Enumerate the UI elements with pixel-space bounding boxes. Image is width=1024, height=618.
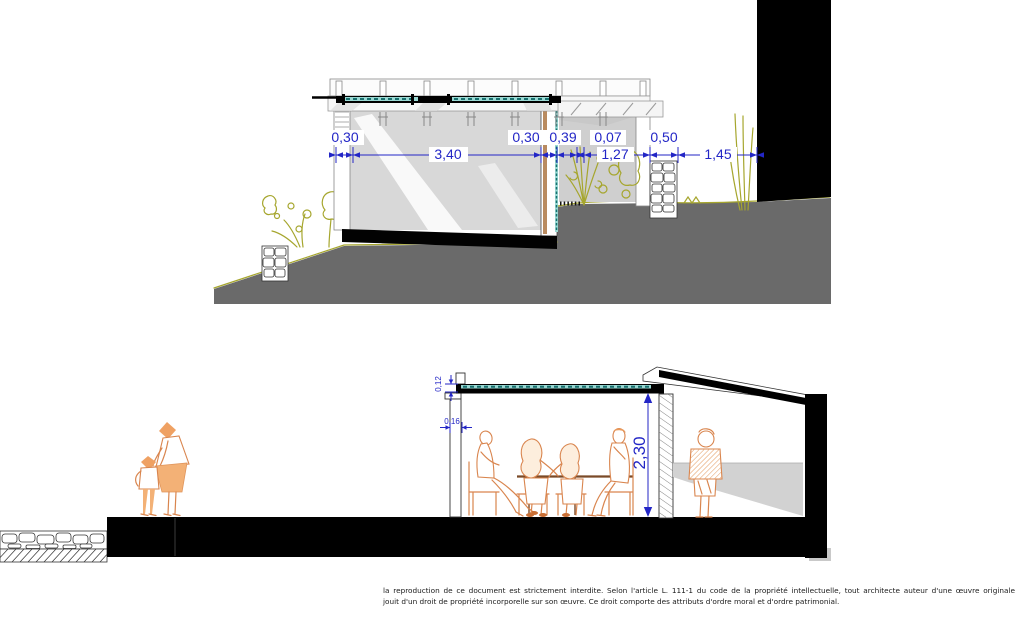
floor-platform (107, 517, 805, 557)
dim-label-012: 0,12 (434, 376, 443, 392)
right-wall (805, 394, 827, 558)
dim-label-030-left: 0,30 (331, 129, 358, 145)
figure-seated-3 (549, 444, 586, 517)
dim-label-050: 0,50 (650, 129, 677, 145)
stone-wall-strip (0, 531, 112, 562)
dim-label-030-right: 0,30 (512, 129, 539, 145)
dim-label-127: 1,27 (601, 146, 628, 162)
copyright-line-2: jouit d'un droit de propriété incorporel… (383, 597, 1015, 608)
support-post (445, 373, 465, 517)
figure-mother-child (136, 422, 189, 516)
bottom-section-drawing: 2,30 0,12 0,16 (0, 367, 831, 562)
dim-label-145: 1,45 (704, 146, 731, 162)
ground-zigzag (684, 197, 700, 203)
dim-label-340: 3,40 (434, 146, 461, 162)
figure-seated-2 (517, 439, 558, 517)
copyright-notice: la reproduction de ce document est stric… (383, 586, 1015, 607)
dim-label-230: 2,30 (630, 436, 649, 469)
flat-roof-band (456, 384, 664, 394)
fascia-beam (558, 101, 663, 117)
cut-wall-hatched (659, 394, 673, 518)
sections-drawing: 0,30 3,40 0,30 0,39 0,07 1,27 0,50 1,45 (0, 0, 1024, 618)
dim-label-039: 0,39 (549, 129, 576, 145)
figure-standing (689, 429, 722, 517)
stone-block-left (262, 246, 288, 281)
dim-label-016: 0,16 (444, 417, 460, 426)
architectural-section-sheet: 0,30 3,40 0,30 0,39 0,07 1,27 0,50 1,45 (0, 0, 1024, 618)
top-section-drawing: 0,30 3,40 0,30 0,39 0,07 1,27 0,50 1,45 (214, 0, 831, 304)
copyright-line-1: la reproduction de ce document est stric… (383, 586, 1015, 597)
adjacent-building-mass (757, 0, 831, 202)
dim-label-007: 0,07 (594, 129, 621, 145)
building-room (334, 104, 557, 249)
table-group (469, 428, 633, 517)
figure-seated-4 (588, 428, 633, 516)
stone-pillar (650, 161, 677, 218)
plants-left (263, 192, 342, 247)
